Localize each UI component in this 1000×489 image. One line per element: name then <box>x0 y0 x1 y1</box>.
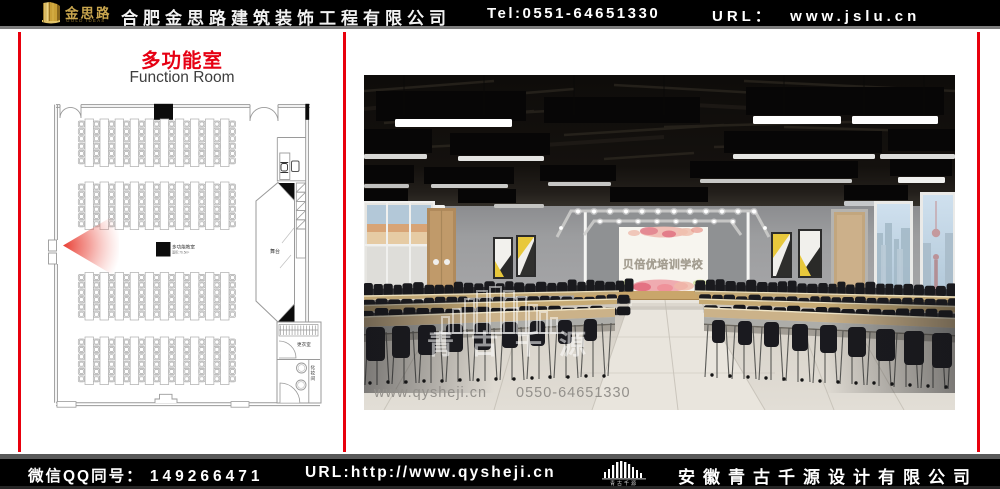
svg-text:贝倍优培训学校: 贝倍优培训学校 <box>623 257 704 271</box>
svg-text:面积:76.5m²: 面积:76.5m² <box>172 250 189 255</box>
svg-text:更衣室: 更衣室 <box>297 341 311 348</box>
svg-text:多功能教室: 多功能教室 <box>172 244 195 251</box>
svg-text:0550-64651330: 0550-64651330 <box>516 385 631 401</box>
svg-text:青古千源: 青古千源 <box>427 330 603 360</box>
svg-text:舞台: 舞台 <box>270 248 280 255</box>
svg-text:间: 间 <box>311 375 316 382</box>
svg-text:青古千源: 青古千源 <box>610 480 638 486</box>
svg-text:www.qysheji.cn: www.qysheji.cn <box>373 385 487 401</box>
